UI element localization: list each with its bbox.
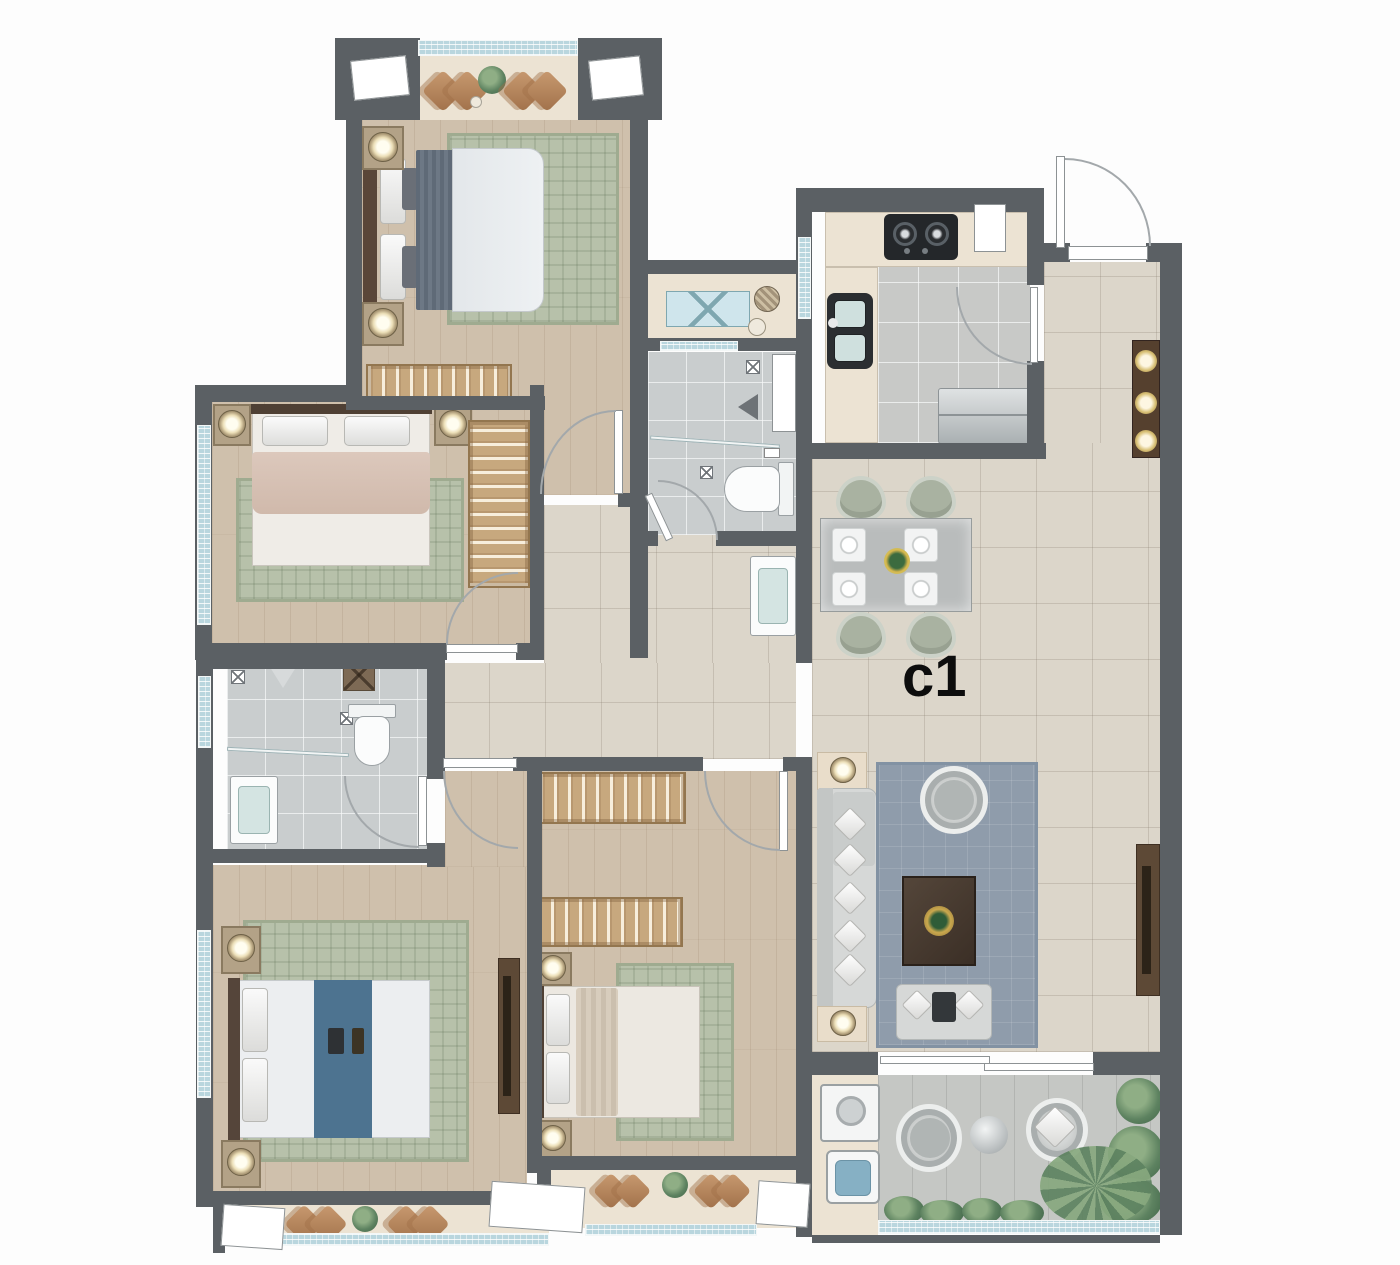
wall bbox=[549, 1156, 812, 1170]
bed-throw bbox=[576, 988, 618, 1116]
window bbox=[756, 1180, 811, 1228]
wall bbox=[618, 493, 632, 507]
floor-corridor bbox=[433, 663, 796, 759]
tv-icon bbox=[503, 976, 511, 1096]
wall bbox=[195, 385, 357, 402]
toilet-bowl bbox=[724, 466, 780, 512]
bed-tray bbox=[352, 1028, 364, 1054]
wall bbox=[808, 443, 1046, 459]
place-setting-icon bbox=[904, 572, 938, 606]
armchair-cushion bbox=[934, 780, 974, 820]
wall bbox=[1093, 1052, 1160, 1075]
bed-duvet bbox=[452, 148, 544, 312]
stove-knob bbox=[904, 248, 910, 254]
table-lamp-icon bbox=[227, 934, 255, 962]
wardrobe bbox=[538, 772, 686, 824]
stove-knob bbox=[922, 248, 928, 254]
table-lamp-icon bbox=[218, 410, 246, 438]
fridge-divider bbox=[938, 414, 1030, 416]
dining-chair bbox=[836, 612, 886, 658]
bed-headboard bbox=[363, 150, 377, 308]
place-setting-icon bbox=[832, 572, 866, 606]
washer-drum-icon bbox=[836, 1096, 866, 1126]
window bbox=[418, 40, 578, 56]
toilet-bowl bbox=[354, 716, 390, 766]
plant-icon bbox=[352, 1206, 378, 1232]
floor-drain-icon bbox=[700, 466, 713, 479]
sliding-door-leaf bbox=[880, 1056, 990, 1064]
bed-pillow bbox=[546, 994, 570, 1046]
wall bbox=[527, 771, 542, 1173]
bed-pillow bbox=[344, 416, 410, 446]
floor-drain-icon bbox=[231, 670, 245, 684]
sliding-door-leaf bbox=[984, 1063, 1094, 1071]
bedroom-west-door-leaf bbox=[446, 644, 518, 653]
wall bbox=[808, 188, 1044, 212]
window bbox=[588, 55, 644, 100]
window bbox=[798, 237, 811, 319]
wall bbox=[783, 757, 796, 771]
centerpiece-icon bbox=[884, 548, 910, 574]
wall bbox=[812, 1052, 878, 1075]
duct-shaft bbox=[772, 354, 796, 432]
table-lamp-icon bbox=[227, 1148, 255, 1176]
burner-icon bbox=[893, 222, 917, 246]
entry-threshold bbox=[1068, 246, 1148, 260]
wall bbox=[1160, 243, 1182, 1235]
bed-pillow bbox=[242, 1058, 268, 1122]
table-lamp-icon bbox=[368, 132, 398, 162]
entry-door-leaf bbox=[1056, 156, 1065, 248]
wall bbox=[346, 118, 362, 410]
wall bbox=[1027, 361, 1044, 445]
vent-icon bbox=[748, 318, 766, 336]
wall bbox=[530, 385, 544, 659]
bed-pillow bbox=[262, 416, 328, 446]
bed-pillow bbox=[242, 988, 268, 1052]
bathroom-left-door-leaf bbox=[418, 776, 427, 846]
window bbox=[878, 1220, 1160, 1234]
window bbox=[489, 1181, 586, 1233]
entry-door-swing bbox=[1065, 158, 1151, 246]
dining-chair bbox=[906, 476, 956, 522]
cup-icon bbox=[470, 96, 482, 108]
skylight-window bbox=[666, 291, 750, 327]
table-lamp-icon bbox=[368, 308, 398, 338]
bedroom-south-door-leaf bbox=[779, 771, 788, 851]
plant-icon bbox=[1116, 1078, 1162, 1124]
bed-pillow bbox=[546, 1052, 570, 1104]
bed-blanket bbox=[252, 452, 430, 514]
plate-icon bbox=[1135, 350, 1157, 372]
outdoor-chair-cushion bbox=[910, 1118, 950, 1158]
wall bbox=[212, 849, 445, 863]
window bbox=[660, 341, 738, 351]
plate-icon bbox=[1135, 430, 1157, 452]
place-setting-icon bbox=[832, 528, 866, 562]
flue-icon bbox=[754, 286, 780, 312]
wall bbox=[513, 757, 703, 771]
toilet-tank bbox=[778, 462, 794, 516]
wardrobe bbox=[468, 420, 530, 588]
table-lamp-icon bbox=[540, 1125, 566, 1151]
plate-icon bbox=[1135, 392, 1157, 414]
window bbox=[350, 55, 410, 101]
plant-icon bbox=[1040, 1146, 1152, 1226]
tv-icon bbox=[1142, 866, 1151, 974]
master-door-leaf bbox=[443, 758, 517, 768]
side-table-ball bbox=[970, 1116, 1008, 1154]
decor-plant-icon bbox=[924, 906, 954, 936]
sink-basin bbox=[834, 334, 866, 362]
tp-holder-icon bbox=[764, 448, 780, 458]
sink-basin bbox=[834, 300, 866, 328]
vanity-basin bbox=[758, 568, 788, 624]
burner-icon bbox=[925, 222, 949, 246]
wall bbox=[632, 531, 658, 546]
laundry-basin bbox=[835, 1160, 871, 1196]
window bbox=[237, 1233, 549, 1246]
bed-blanket bbox=[416, 150, 454, 310]
wardrobe bbox=[535, 897, 683, 947]
table-lamp-icon bbox=[439, 410, 467, 438]
faucet-icon bbox=[828, 318, 838, 328]
bed-runner bbox=[314, 980, 372, 1138]
plant-icon bbox=[662, 1172, 688, 1198]
sofa-backrest bbox=[817, 788, 833, 1008]
table-lamp-icon bbox=[830, 1010, 856, 1036]
window bbox=[197, 425, 211, 625]
window bbox=[197, 930, 211, 1098]
duct-shaft bbox=[974, 204, 1006, 252]
refrigerator bbox=[938, 388, 1030, 444]
wall bbox=[212, 655, 445, 669]
vanity-basin bbox=[238, 786, 270, 834]
window bbox=[198, 676, 211, 748]
table-lamp-icon bbox=[830, 757, 856, 783]
wall bbox=[630, 98, 648, 658]
wall bbox=[648, 260, 808, 274]
wall bbox=[716, 531, 796, 546]
plant-icon bbox=[478, 66, 506, 94]
bed-tray bbox=[328, 1028, 344, 1054]
window bbox=[585, 1224, 757, 1236]
loveseat-tray bbox=[932, 992, 956, 1022]
bed-headboard bbox=[228, 978, 240, 1140]
unit-label: c1 bbox=[902, 648, 1012, 712]
floor-drain-icon bbox=[746, 360, 760, 374]
table-lamp-icon bbox=[540, 955, 566, 981]
wall bbox=[812, 1235, 1160, 1243]
floor-plan: c1 bbox=[0, 0, 1400, 1265]
dining-chair bbox=[836, 476, 886, 522]
wall bbox=[355, 396, 545, 410]
window bbox=[221, 1204, 286, 1250]
